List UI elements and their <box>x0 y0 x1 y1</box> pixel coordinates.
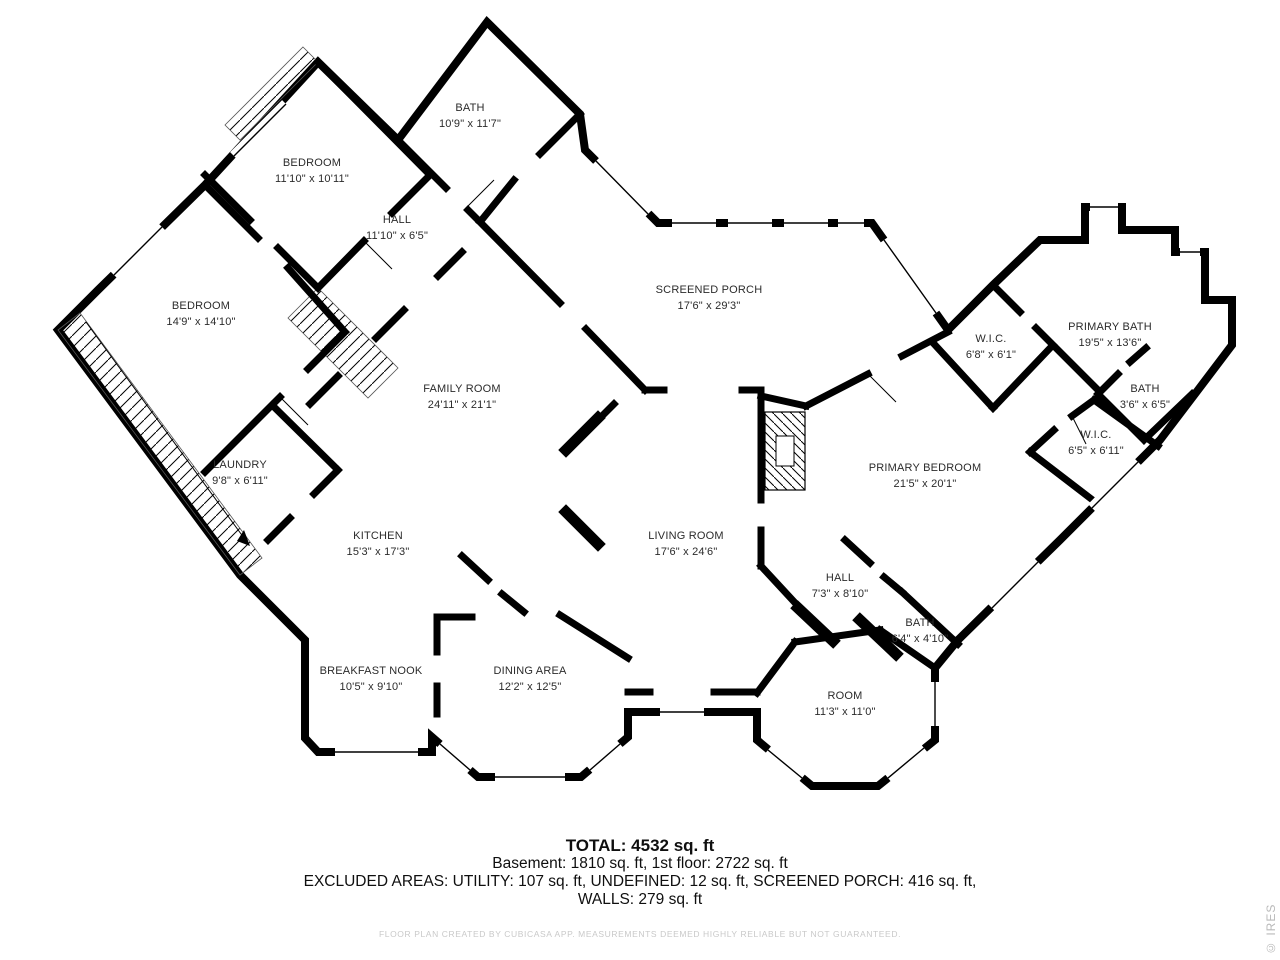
room-label-hall-upper: HALL11'10" x 6'5" <box>366 212 428 244</box>
fireplace-firebox <box>776 436 794 466</box>
walls-area-text: WALLS: 279 sq. ft <box>0 891 1280 909</box>
room-label-breakfast-nook: BREAKFAST NOOK10'5" x 9'10" <box>320 663 423 695</box>
ires-watermark: © IRES <box>1264 893 1278 955</box>
room-label-kitchen: KITCHEN15'3" x 17'3" <box>347 528 410 560</box>
room-label-bedroom-left: BEDROOM14'9" x 14'10" <box>166 298 235 330</box>
disclaimer-text: FLOOR PLAN CREATED BY CUBICASA APP. MEAS… <box>0 929 1280 939</box>
room-label-living-room: LIVING ROOM17'6" x 24'6" <box>648 528 724 560</box>
room-label-hall-lower: HALL7'3" x 8'10" <box>812 570 869 602</box>
room-label-primary-bedroom: PRIMARY BEDROOM21'5" x 20'1" <box>869 460 982 492</box>
room-label-family-room: FAMILY ROOM24'11" x 21'1" <box>423 381 501 413</box>
room-label-bath-upper: BATH10'9" x 11'7" <box>439 100 501 132</box>
floorplan-drawing <box>0 0 1280 960</box>
total-area-text: TOTAL: 4532 sq. ft <box>0 836 1280 855</box>
room-label-bath-small: BATH3'6" x 6'5" <box>1120 381 1170 413</box>
room-label-primary-bath: PRIMARY BATH19'5" x 13'6" <box>1068 319 1152 351</box>
room-label-screened-porch: SCREENED PORCH17'6" x 29'3" <box>656 282 763 314</box>
room-label-dining-area: DINING AREA12'2" x 12'5" <box>493 663 566 695</box>
room-label-wic-lower: W.I.C.6'5" x 6'11" <box>1068 427 1124 459</box>
excluded-areas-text: EXCLUDED AREAS: UTILITY: 107 sq. ft, UND… <box>0 873 1280 891</box>
floorplan-page: BATH10'9" x 11'7" BEDROOM11'10" x 10'11"… <box>0 0 1280 960</box>
perimeter-wall <box>58 22 1232 786</box>
room-label-wic-upper: W.I.C.6'8" x 6'1" <box>966 331 1016 363</box>
room-label-bedroom-upper: BEDROOM11'10" x 10'11" <box>275 155 349 187</box>
room-label-bath-lower: BATH6'4" x 4'10" <box>892 615 949 647</box>
floor-areas-text: Basement: 1810 sq. ft, 1st floor: 2722 s… <box>0 855 1280 873</box>
area-summary: TOTAL: 4532 sq. ft Basement: 1810 sq. ft… <box>0 836 1280 909</box>
room-label-room: ROOM11'3" x 11'0" <box>814 688 875 720</box>
room-label-laundry: LAUNDRY9'8" x 6'11" <box>212 457 268 489</box>
